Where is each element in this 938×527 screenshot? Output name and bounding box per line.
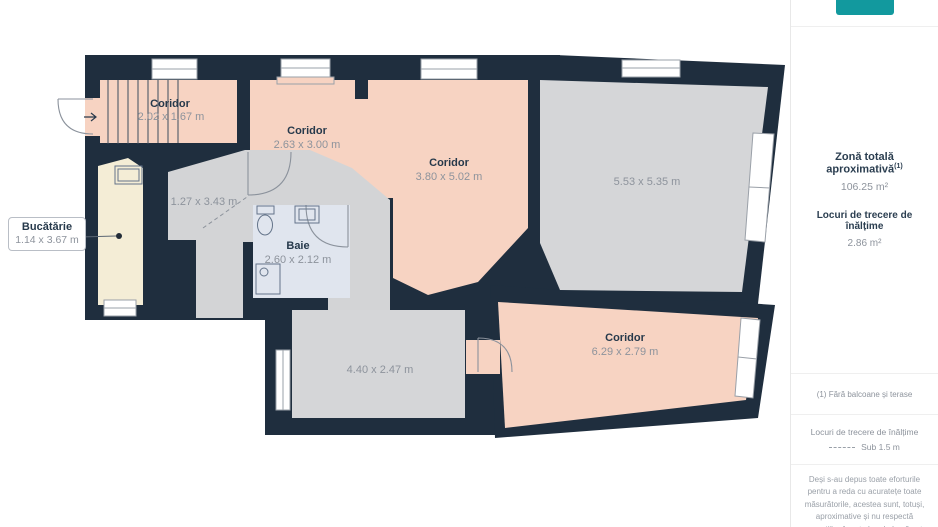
room-dims: 5.53 x 5.35 m [614,176,681,188]
room-name: Coridor [150,98,190,110]
passage-area-value: 2.86 m² [848,238,882,249]
legend: Locuri de trecere de înălțime Sub 1.5 m [791,415,938,465]
room-bucatarie [98,158,143,305]
room-name: Bucătărie [9,221,85,233]
room-name: Baie [286,240,309,252]
area-summary: Zonă totală aproximativă(1) 106.25 m² Lo… [791,27,938,374]
room-name: Coridor [605,332,645,344]
room-dims: 2.63 x 3.00 m [274,139,341,151]
callout-anchor-dot [116,233,122,239]
room-dims: 3.80 x 5.02 m [416,171,483,183]
sidebar-top-bar [791,0,938,27]
room-dims: 2.60 x 2.12 m [265,254,332,266]
dashed-line-icon [829,447,855,448]
doorway-42 [466,340,500,374]
room-dims: 4.40 x 2.47 m [347,364,414,376]
window-sill [277,77,334,84]
legend-value: Sub 1.5 m [861,442,900,452]
floorplan-svg: Coridor 2.02 x 1.67 m Coridor 2.63 x 3.0… [0,0,790,527]
room-dims: 6.29 x 2.79 m [592,346,659,358]
sidebar: Zonă totală aproximativă(1) 106.25 m² Lo… [790,0,938,527]
room-dims: 1.14 x 3.67 m [9,234,85,246]
total-area-value: 106.25 m² [841,181,888,193]
room-callout-bucatarie: Bucătărie 1.14 x 3.67 m [8,217,86,251]
action-button[interactable] [836,0,894,15]
floorplan-viewer: Coridor 2.02 x 1.67 m Coridor 2.63 x 3.0… [0,0,938,527]
room-name: Coridor [287,125,327,137]
room-name: Coridor [429,157,469,169]
disclaimer: Deși s-au depus toate eforturile pentru … [791,465,938,527]
footnote: (1) Fără balcoane și terase [791,374,938,415]
room-dims: 1.27 x 3.43 m [171,196,238,208]
floorplan-canvas: Coridor 2.02 x 1.67 m Coridor 2.63 x 3.0… [0,0,790,527]
legend-title: Locuri de trecere de înălțime [811,427,919,437]
room-dims: 2.02 x 1.67 m [138,111,205,123]
passage-area-label: Locuri de trecere de înălțime [799,210,930,232]
footnote-ref: (1) [894,163,903,170]
total-area-label: Zonă totală aproximativă(1) [799,151,930,176]
